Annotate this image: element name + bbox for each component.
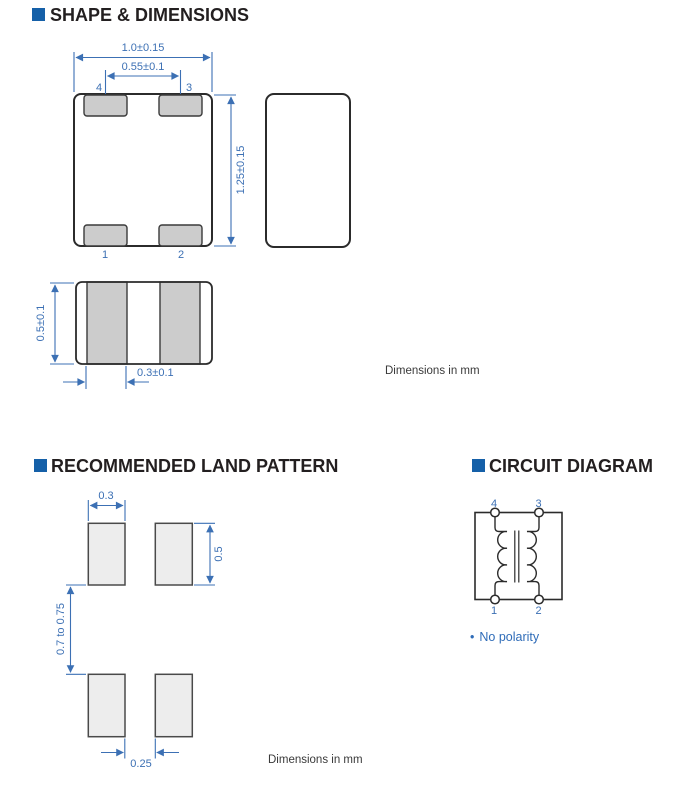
terminal-pad-4 bbox=[84, 95, 127, 116]
bottom-terminal-band-left bbox=[87, 282, 127, 364]
pin-label-3: 3 bbox=[186, 82, 192, 94]
bottom-view-drawing bbox=[50, 282, 212, 389]
terminal-node-2 bbox=[535, 595, 544, 604]
circuit-section-title: CIRCUIT DIAGRAM bbox=[489, 456, 653, 477]
no-polarity-text: No polarity bbox=[479, 630, 539, 644]
shape-section-title: SHAPE & DIMENSIONS bbox=[50, 5, 249, 26]
circuit-pin-label-2: 2 bbox=[535, 605, 541, 617]
circuit-pin-label-4: 4 bbox=[491, 498, 497, 510]
dim-bottom-height-lines bbox=[50, 283, 74, 364]
land-pad-bottom-left bbox=[88, 674, 125, 736]
section-bullet-square bbox=[32, 8, 45, 21]
units-note-land: Dimensions in mm bbox=[268, 754, 363, 766]
primary-winding bbox=[495, 517, 507, 595]
terminal-pad-2 bbox=[159, 225, 202, 246]
pin-label-4: 4 bbox=[96, 82, 102, 94]
land-pad-bottom-right bbox=[155, 674, 192, 736]
dim-label-bottom-height: 0.5±0.1 bbox=[35, 305, 47, 342]
land-section-title: RECOMMENDED LAND PATTERN bbox=[51, 456, 338, 477]
land-pad-top-left bbox=[88, 523, 125, 585]
circuit-terminals bbox=[491, 508, 544, 604]
terminal-pad-1 bbox=[84, 225, 127, 246]
bullet-dot: • bbox=[470, 630, 474, 644]
land-pad-top-right bbox=[155, 523, 192, 585]
component-body-side-view bbox=[266, 94, 350, 247]
drawing-layer bbox=[0, 0, 686, 797]
dim-label-terminal-width: 0.3±0.1 bbox=[137, 367, 174, 379]
dim-land-pad-height-lines bbox=[194, 523, 215, 585]
dim-label-land-gap-vertical: 0.7 to 0.75 bbox=[55, 603, 67, 655]
terminal-node-1 bbox=[491, 595, 500, 604]
pin-label-1: 1 bbox=[102, 249, 108, 261]
side-view-drawing bbox=[266, 94, 350, 247]
dim-label-height: 1.25±0.15 bbox=[235, 146, 247, 195]
dim-land-gap-horizontal-lines bbox=[101, 739, 179, 759]
units-note-shape: Dimensions in mm bbox=[385, 365, 480, 377]
dim-label-inner: 0.55±0.1 bbox=[122, 61, 165, 73]
section-bullet-square bbox=[472, 459, 485, 472]
circuit-pin-label-3: 3 bbox=[535, 498, 541, 510]
datasheet-page: SHAPE & DIMENSIONS 1.0±0.15 0.55±0.1 1.2… bbox=[0, 0, 686, 797]
bottom-terminal-band-right bbox=[160, 282, 200, 364]
dim-label-land-pad-height: 0.5 bbox=[213, 546, 225, 561]
no-polarity-note: •No polarity bbox=[470, 630, 539, 644]
dim-label-width: 1.0±0.15 bbox=[122, 42, 165, 54]
dim-land-gap-vertical-lines bbox=[66, 585, 86, 674]
dim-land-pad-width-lines bbox=[88, 500, 125, 521]
pin-label-2: 2 bbox=[178, 249, 184, 261]
circuit-diagram-drawing bbox=[475, 508, 562, 604]
terminal-pad-3 bbox=[159, 95, 202, 116]
dim-label-land-gap-horizontal: 0.25 bbox=[130, 758, 151, 770]
dim-inner-lines bbox=[106, 70, 181, 94]
section-bullet-square bbox=[34, 459, 47, 472]
transformer-windings bbox=[495, 517, 539, 595]
secondary-winding bbox=[527, 517, 539, 595]
component-body-top-view bbox=[74, 94, 212, 246]
land-pattern-drawing bbox=[66, 500, 215, 759]
dim-label-land-pad-width: 0.3 bbox=[98, 490, 113, 502]
circuit-pin-label-1: 1 bbox=[491, 605, 497, 617]
dim-height-lines bbox=[214, 95, 236, 246]
